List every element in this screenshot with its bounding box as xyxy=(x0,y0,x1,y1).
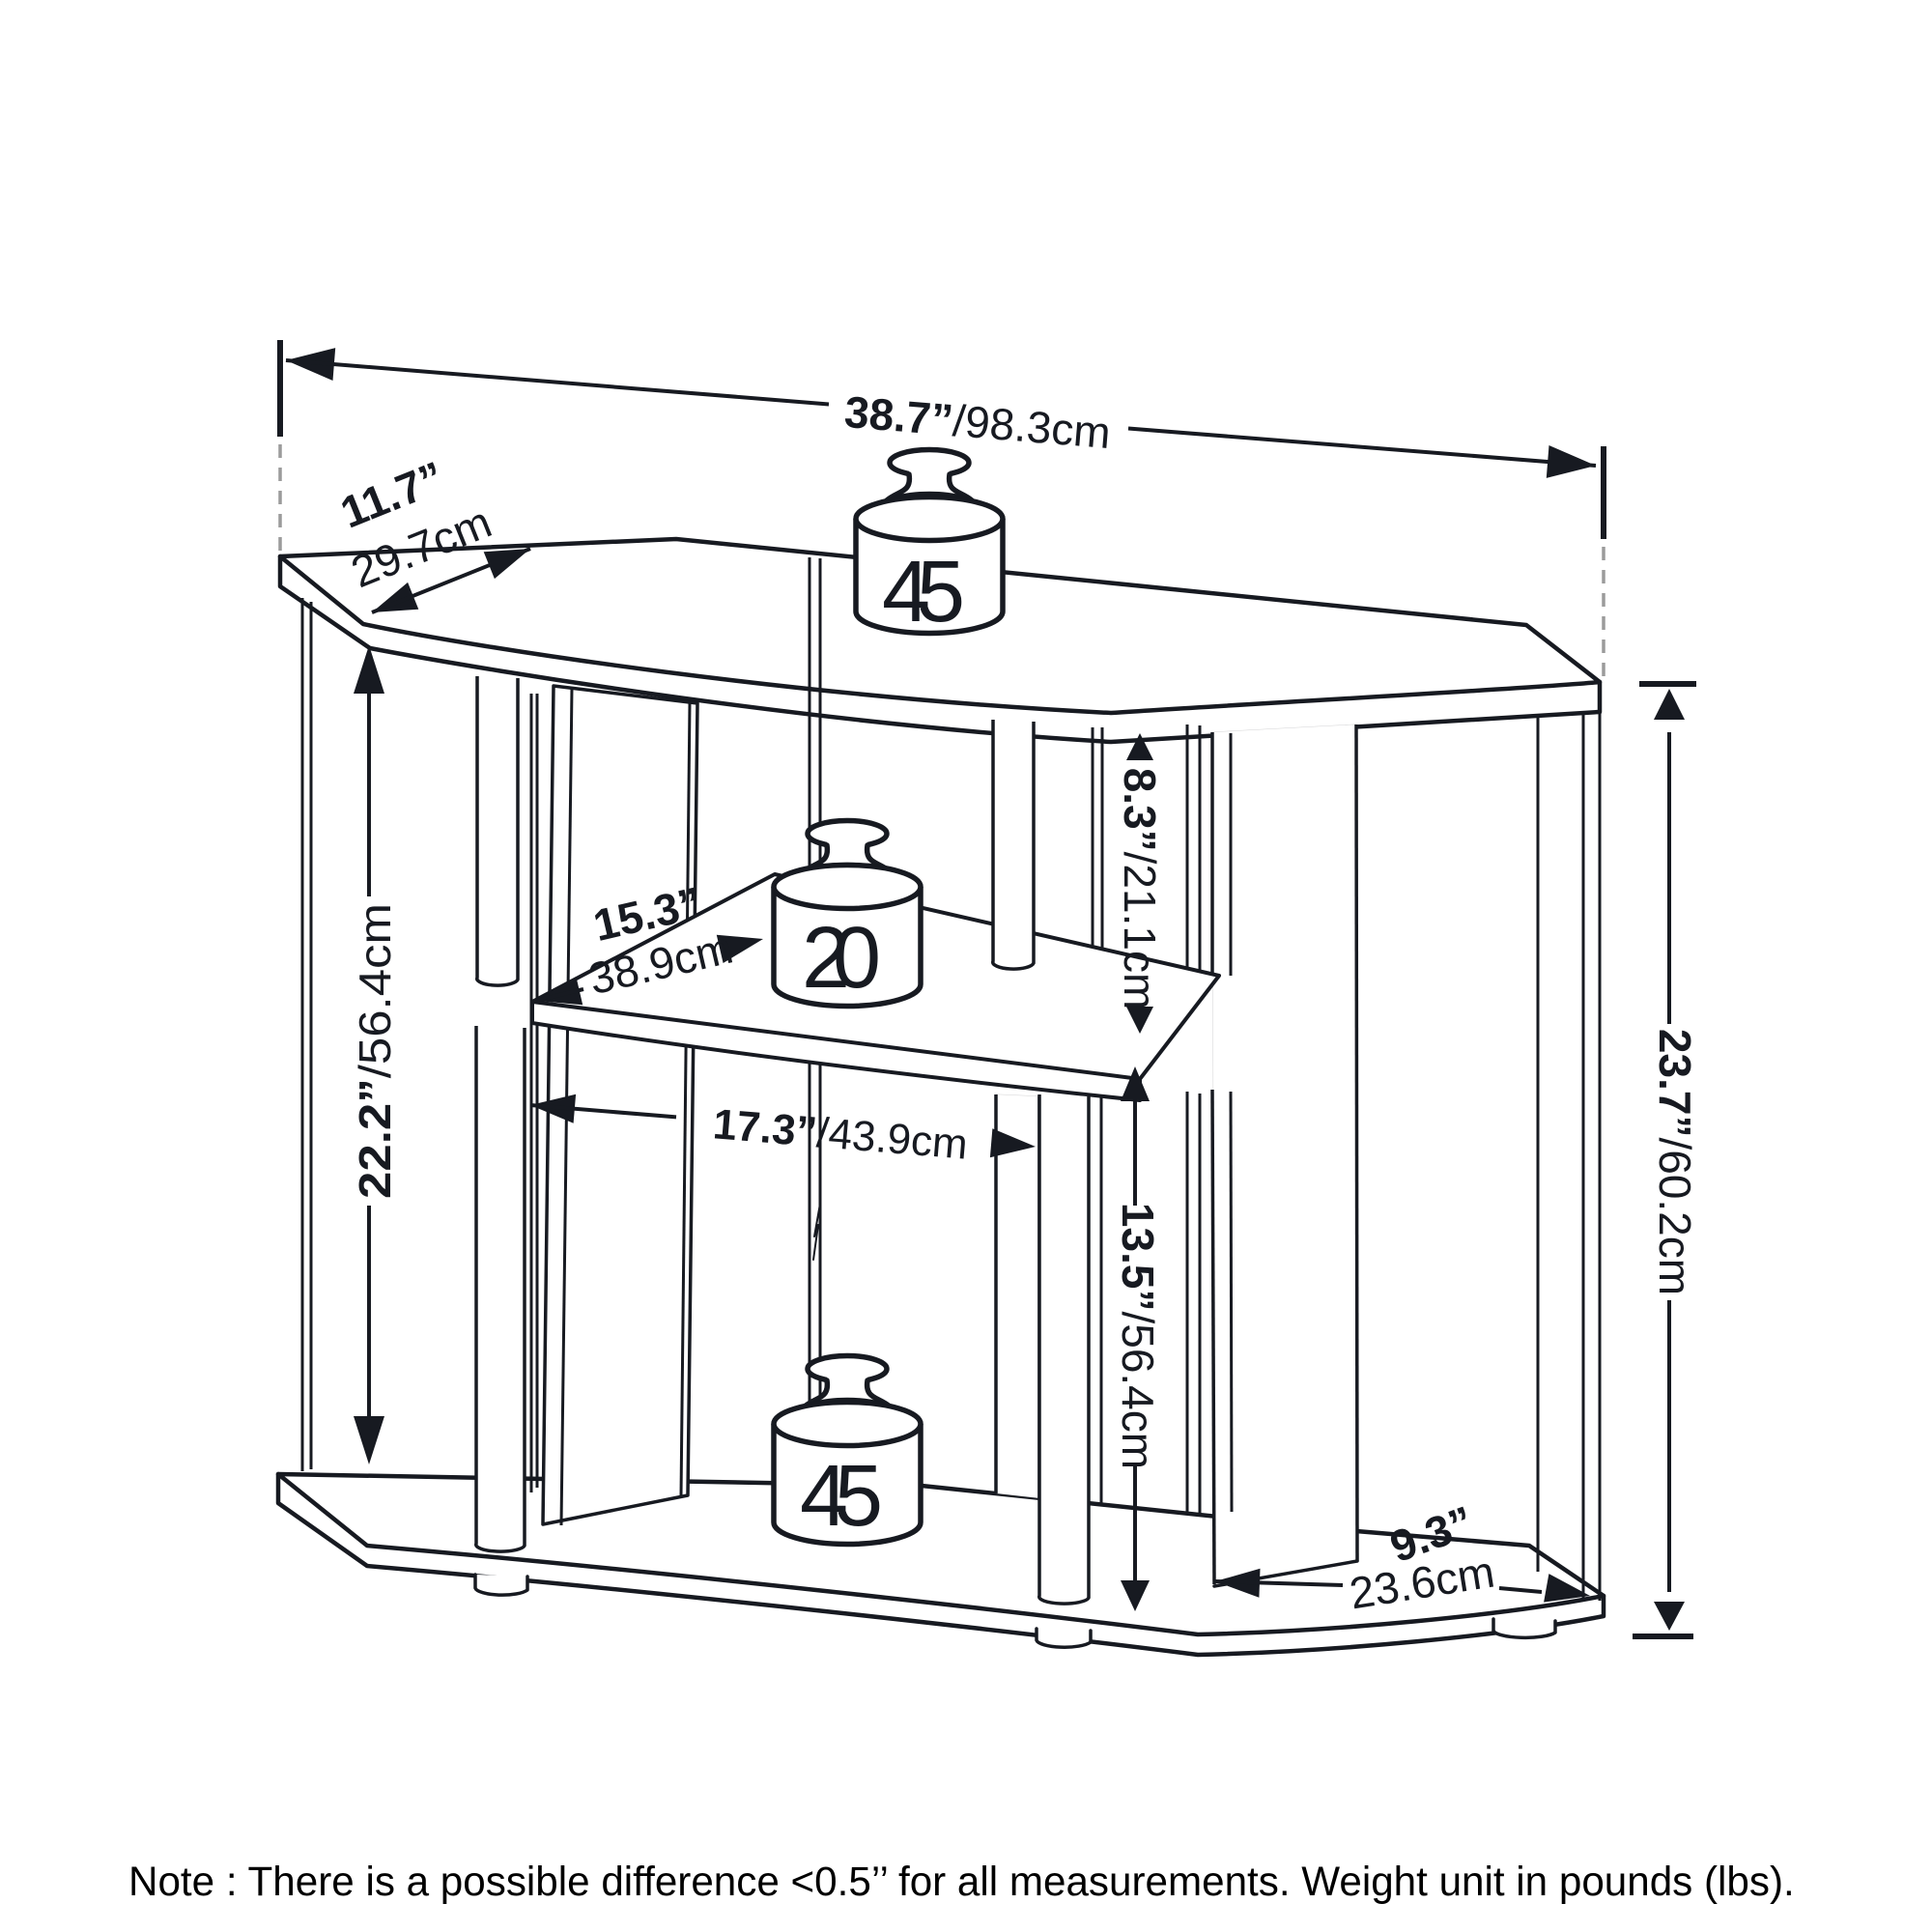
svg-text:13.5”/56.4cm: 13.5”/56.4cm xyxy=(1113,1203,1163,1469)
svg-text:45: 45 xyxy=(882,544,965,640)
svg-text:Note : There is a possible dif: Note : There is a possible difference <0… xyxy=(128,1859,1795,1904)
svg-text:23.7”/60.2cm: 23.7”/60.2cm xyxy=(1650,1029,1700,1295)
svg-text:45: 45 xyxy=(800,1448,883,1545)
svg-text:8.3”/21.1cm: 8.3”/21.1cm xyxy=(1115,768,1165,1010)
svg-text:22.2”/56.4cm: 22.2”/56.4cm xyxy=(350,903,400,1199)
svg-text:20: 20 xyxy=(802,910,881,1007)
